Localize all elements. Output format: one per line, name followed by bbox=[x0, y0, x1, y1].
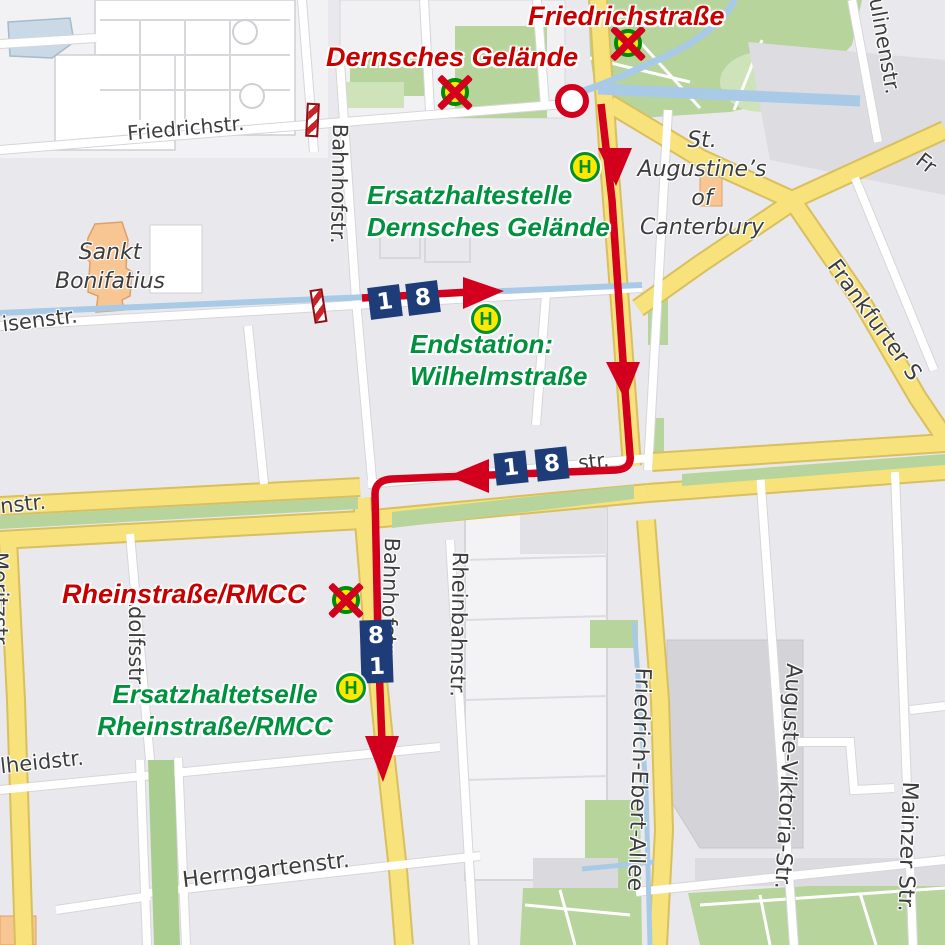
replacement-label-line: Ersatzhaltestelle bbox=[367, 179, 610, 211]
diversion-map: Friedrichstr. Bahnhofstr. isenstr. uline… bbox=[0, 0, 945, 945]
line-1-badge: 1 bbox=[367, 284, 403, 320]
h-letter: H bbox=[579, 157, 592, 178]
closed-stop-icon bbox=[324, 578, 368, 622]
line-8-badge: 8 bbox=[534, 446, 569, 481]
closed-stop-label-rheinstrasse-rmcc: Rheinstraße/RMCC bbox=[62, 579, 307, 610]
replacement-label-line: Rheinstraße/RMCC bbox=[70, 710, 360, 742]
replacement-stop-label-dernsches: Ersatzhaltestelle Dernsches Gelände bbox=[367, 179, 610, 243]
replacement-label-line: Dernsches Gelände bbox=[367, 211, 610, 243]
closed-stop-icon bbox=[433, 70, 477, 114]
route-overlay-svg bbox=[0, 0, 945, 945]
replacement-label-line: Ersatzhaltetselle bbox=[70, 678, 360, 710]
replacement-label-line: Wilhelmstraße bbox=[410, 360, 587, 392]
h-stop-icon: H bbox=[570, 152, 600, 182]
closed-stop-label-friedrichstrasse: Friedrichstraße bbox=[528, 1, 725, 32]
closure-marker-icon bbox=[305, 103, 320, 138]
h-letter: H bbox=[480, 309, 493, 330]
closed-stop-label-dernsches-gelaende: Dernsches Gelände bbox=[326, 42, 578, 73]
line-1-badge: 1 bbox=[360, 650, 393, 683]
line-8-badge: 8 bbox=[359, 619, 392, 652]
replacement-label-line: Endstation: bbox=[410, 328, 587, 360]
replacement-stop-label-rheinstrasse: Ersatzhaltetselle Rheinstraße/RMCC bbox=[70, 678, 360, 742]
line-8-badge: 8 bbox=[405, 280, 441, 316]
line-1-badge: 1 bbox=[493, 450, 528, 485]
route-start-circle bbox=[558, 87, 586, 115]
terminus-label-wilhelmstrasse: Endstation: Wilhelmstraße bbox=[410, 328, 587, 392]
